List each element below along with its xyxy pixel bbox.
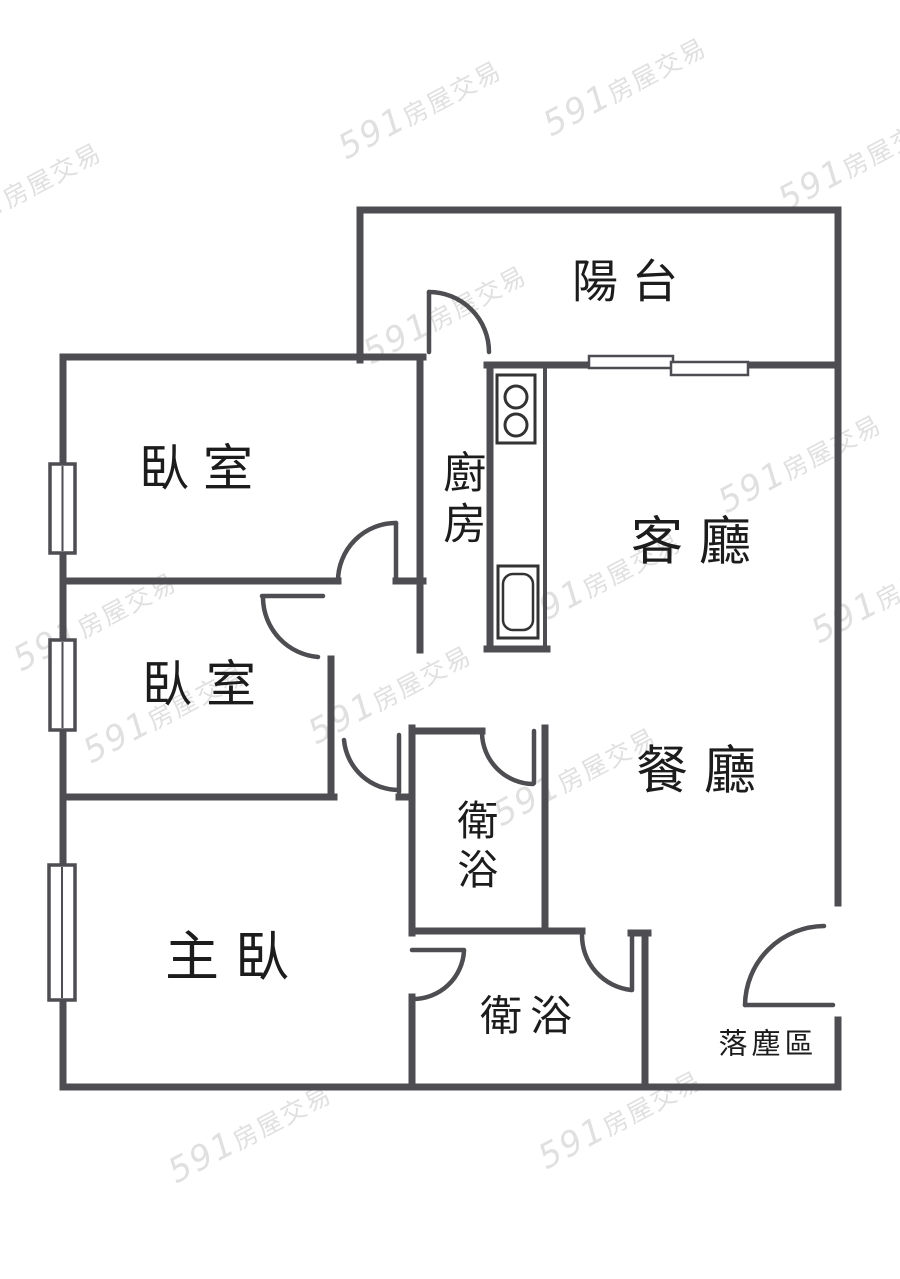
- sliding-door-symbol: [589, 356, 748, 375]
- room-label-bedroom1: 臥室: [139, 443, 267, 496]
- room-label-dining-room: 餐廳: [636, 744, 772, 799]
- room-label-bedroom2: 臥室: [142, 659, 270, 712]
- bathroom1-door-swing: [482, 731, 534, 784]
- master-bath-door-swing: [412, 950, 464, 999]
- master-door-swing: [344, 735, 399, 792]
- room-label-master-bedroom: 主臥: [165, 928, 305, 985]
- room-label-bathroom1: 衛浴: [451, 799, 494, 897]
- bedroom1-door-swing: [338, 523, 396, 581]
- room-label-balcony: 陽台: [572, 258, 692, 307]
- floorplan-canvas: 591房屋交易591房屋交易591房屋交易591房屋交易591房屋交易591房屋…: [0, 0, 900, 1279]
- bathroom2-door-swing: [582, 933, 632, 990]
- room-label-living-room: 客廳: [631, 515, 767, 570]
- room-label-bathroom2: 衛浴: [480, 995, 580, 1040]
- floorplan-drawing: [0, 0, 900, 1279]
- window-symbol-bedroom2: [50, 640, 75, 730]
- stove-symbol: [497, 375, 535, 443]
- balcony-door-swing: [429, 292, 489, 352]
- room-label-entry-zone: 落塵區: [718, 1029, 817, 1060]
- room-label-kitchen: 廚房: [437, 450, 483, 552]
- window-symbol-master: [49, 865, 75, 1000]
- window-symbol-bedroom1: [50, 464, 75, 553]
- bedroom2-door-swing: [262, 596, 323, 657]
- entrance-door-swing: [745, 926, 833, 1005]
- sink-symbol: [498, 566, 538, 638]
